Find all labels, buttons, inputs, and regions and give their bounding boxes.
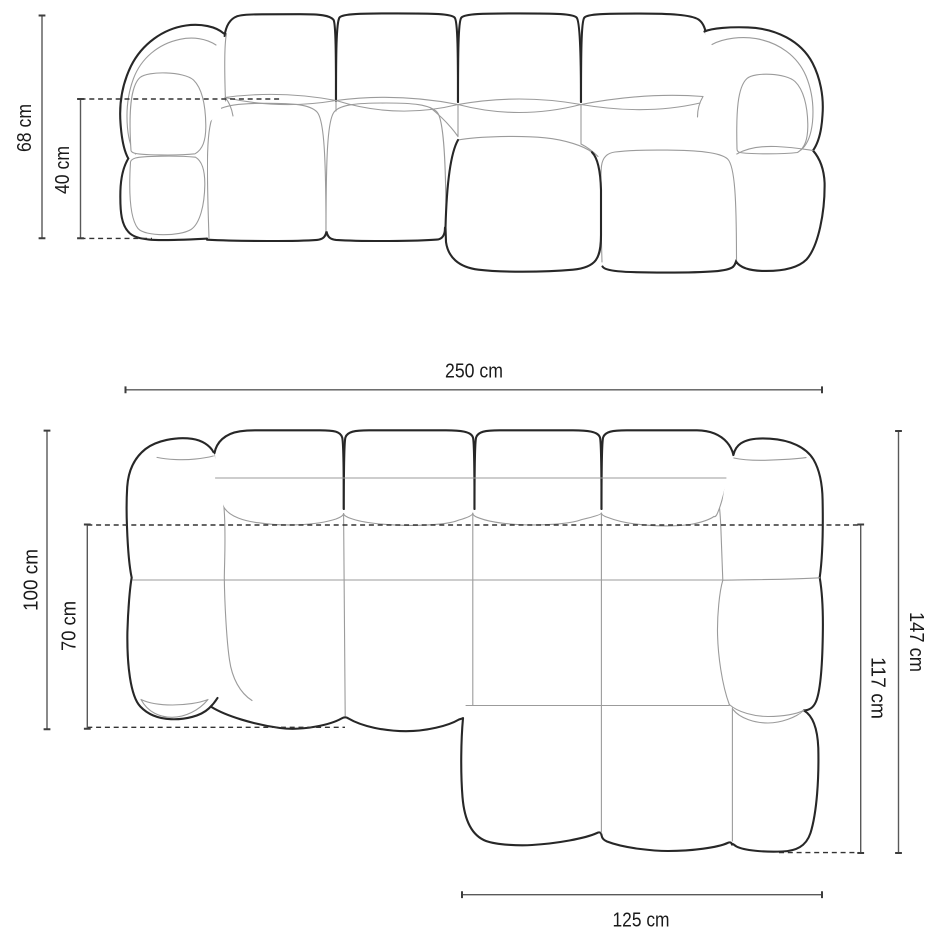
svg-text:147 cm: 147 cm [905,612,928,672]
svg-text:70 cm: 70 cm [58,601,81,651]
svg-text:100 cm: 100 cm [20,549,43,611]
svg-text:250 cm: 250 cm [445,360,503,383]
svg-text:68 cm: 68 cm [13,104,36,152]
svg-text:125 cm: 125 cm [613,908,670,931]
svg-text:40 cm: 40 cm [51,146,74,194]
svg-text:117 cm: 117 cm [867,657,890,719]
